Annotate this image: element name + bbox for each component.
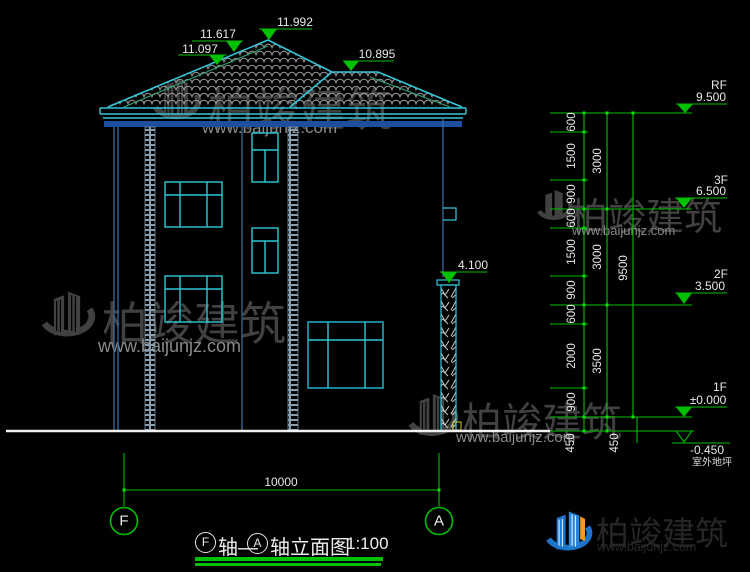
eave-band xyxy=(104,121,462,127)
axis-bubble-a xyxy=(426,508,453,535)
window-2f-wide xyxy=(165,276,222,322)
windows xyxy=(165,133,383,388)
wall-ledge xyxy=(443,208,456,220)
cad-elevation-screenshot: 柏竣建筑 www.baijunjz.com 柏竣建筑 www.baijunjz.… xyxy=(0,0,750,572)
eave xyxy=(100,108,466,118)
pilaster-middle xyxy=(288,127,298,431)
brand-logo xyxy=(542,502,594,565)
window-3f-wide xyxy=(165,182,222,227)
title-underline-thick xyxy=(195,557,383,561)
dimension-ticks xyxy=(123,112,635,492)
roof xyxy=(100,40,466,127)
pilaster-left xyxy=(145,127,155,431)
window-1f-wide xyxy=(308,322,383,388)
elevation-drawing xyxy=(0,0,750,572)
axis-bubble-f xyxy=(111,508,138,535)
brand-logo-url: www.baijunjz.com xyxy=(597,540,696,554)
ground-level-marker xyxy=(676,431,692,442)
window-3f-tall xyxy=(252,133,278,182)
stone-column xyxy=(437,280,461,431)
window-2f-tall xyxy=(252,228,278,273)
title-underline-thin xyxy=(195,563,381,566)
brand-logo-icon xyxy=(542,502,594,560)
